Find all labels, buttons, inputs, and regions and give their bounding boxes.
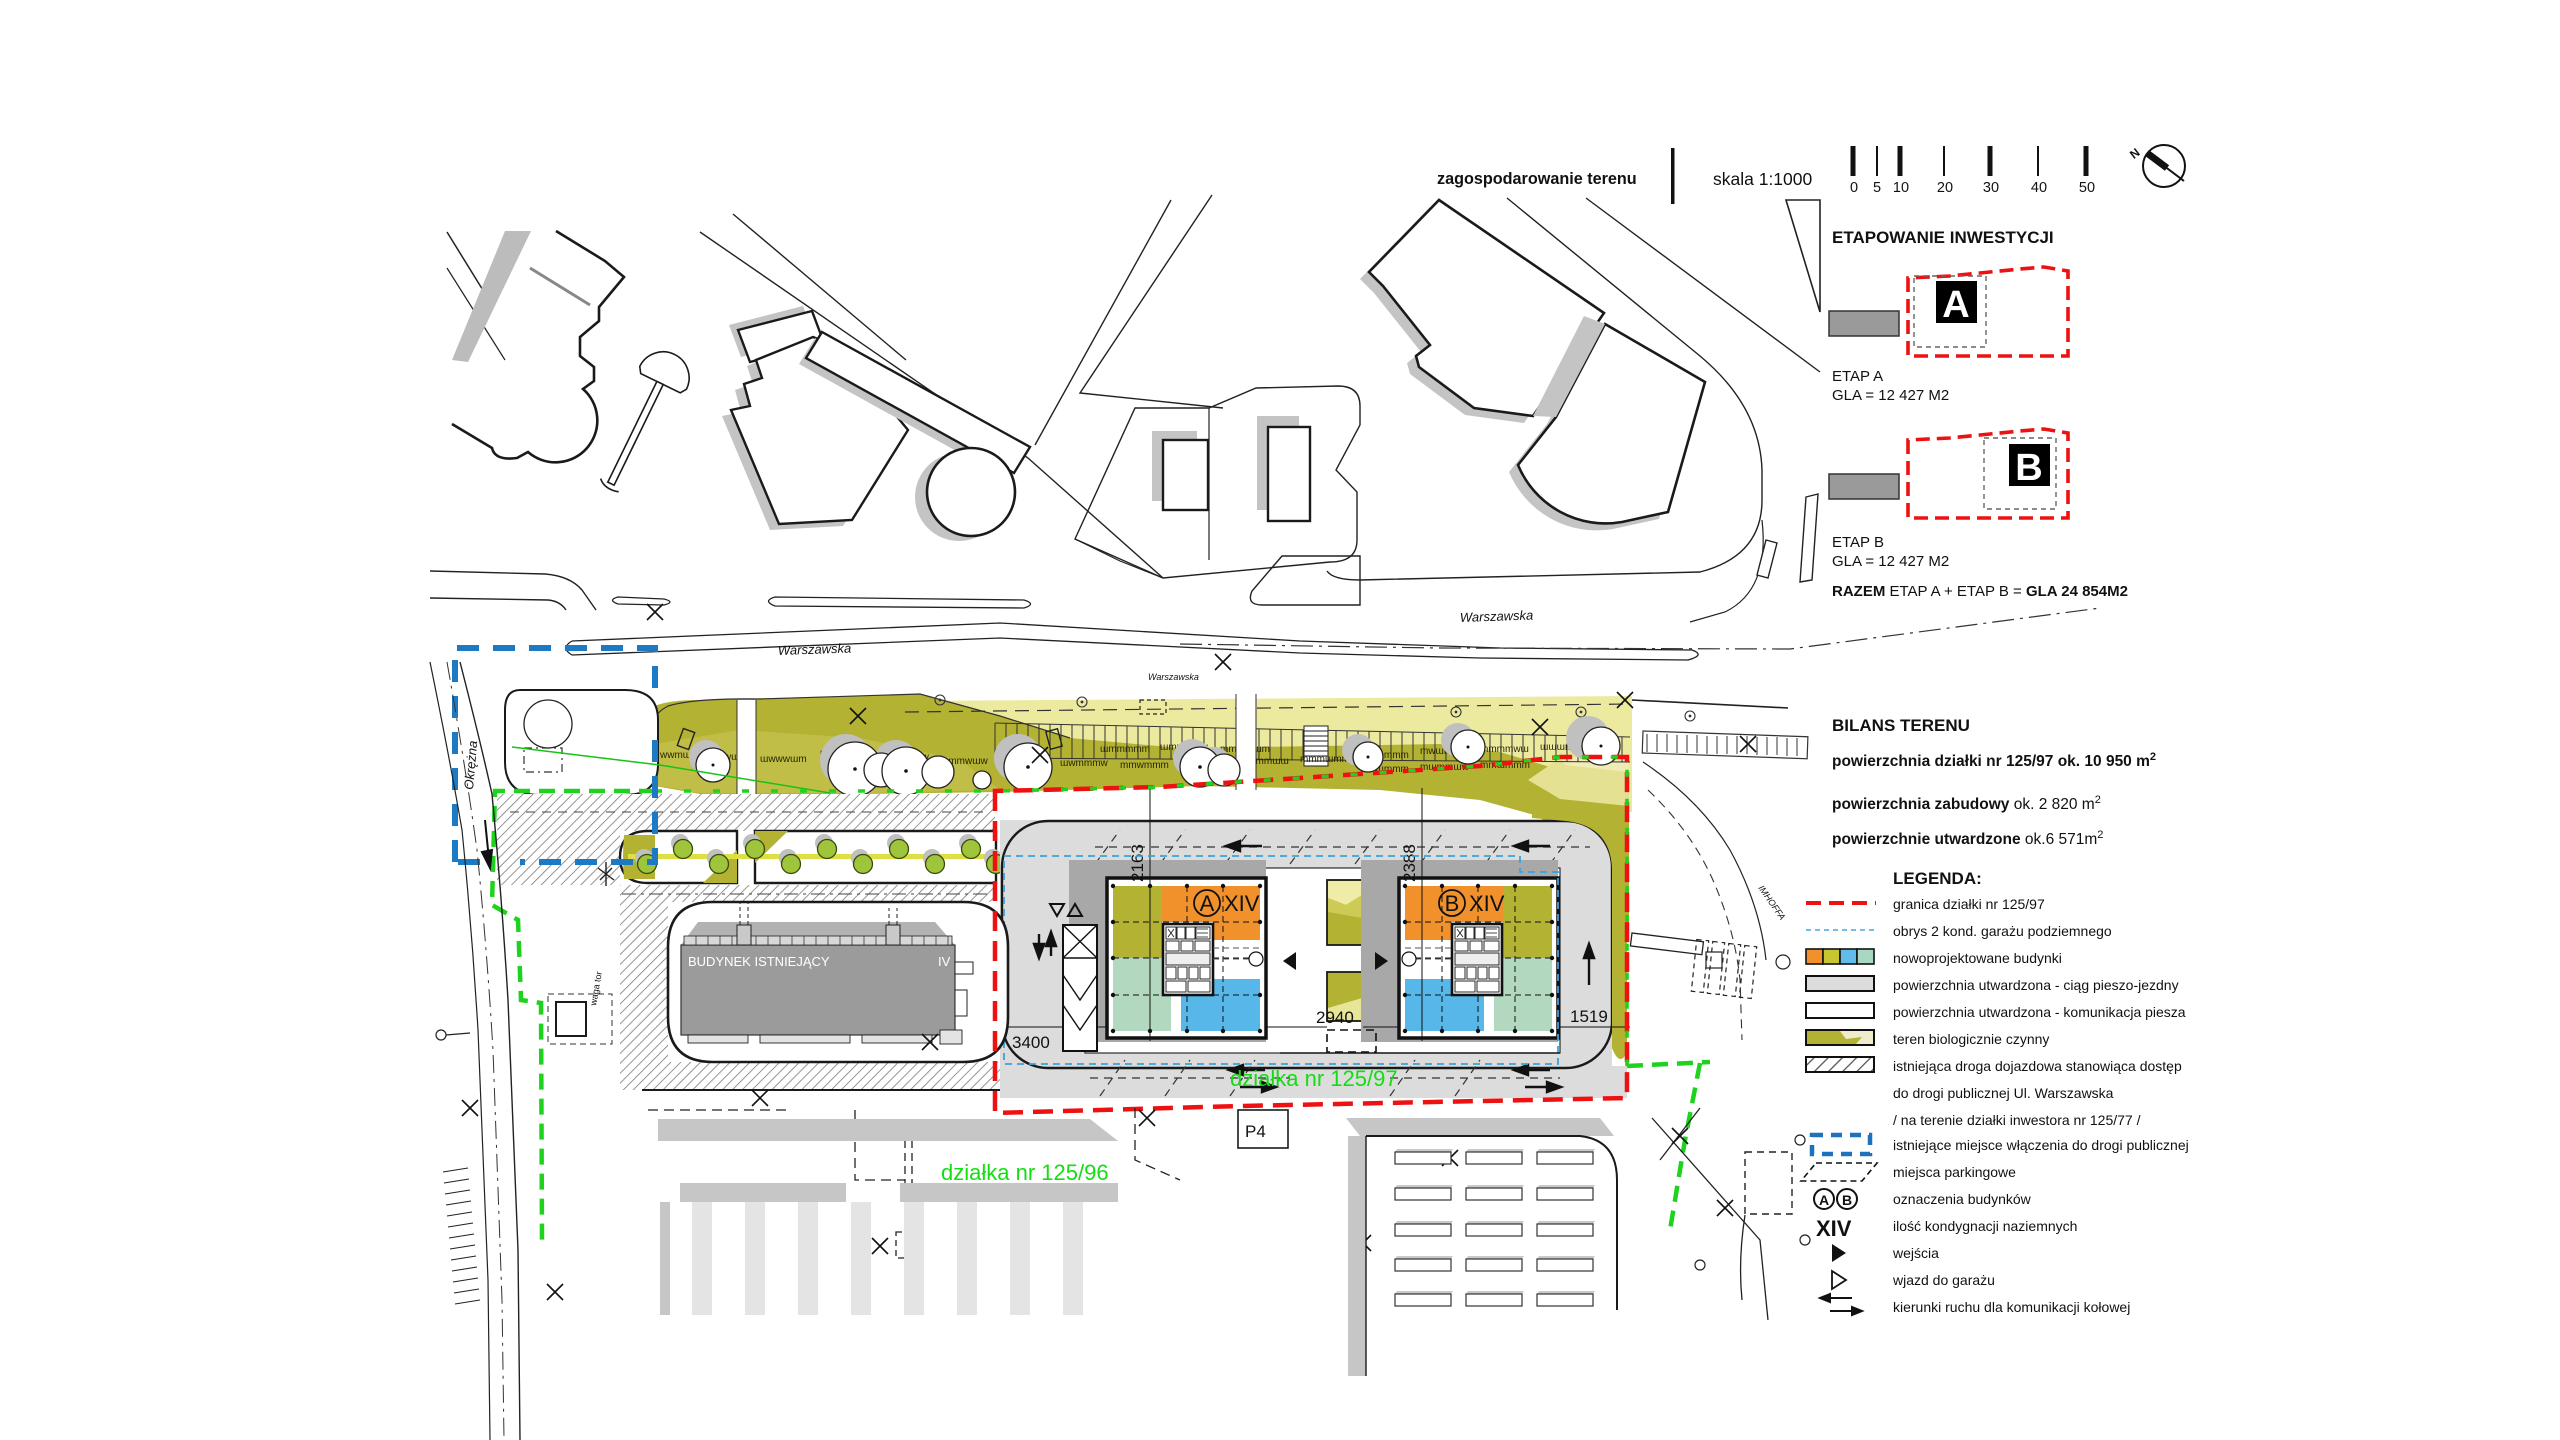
svg-text:nowoprojektowane budynki: nowoprojektowane budynki	[1893, 950, 2062, 966]
svg-text:1519: 1519	[1570, 1007, 1608, 1026]
svg-text:RAZEM ETAP A + ETAP B = GLA 24: RAZEM ETAP A + ETAP B = GLA 24 854M2	[1832, 583, 2128, 600]
svg-text:oznaczenia budynków: oznaczenia budynków	[1893, 1191, 2032, 1207]
svg-text:Warszawska: Warszawska	[778, 640, 852, 658]
svg-text:wejścia: wejścia	[1892, 1245, 1939, 1261]
svg-text:BILANS TERENU: BILANS TERENU	[1832, 716, 1970, 735]
svg-text:mmwmmm: mmwmmm	[1120, 760, 1169, 771]
svg-text:ɯwwwɯm: ɯwwwɯm	[760, 754, 807, 765]
svg-text:powierzchnia zabudowy ok. 2 82: powierzchnia zabudowy ok. 2 820 m2	[1832, 794, 2101, 813]
svg-text:teren biologicznie czynny: teren biologicznie czynny	[1893, 1031, 2049, 1047]
svg-text:20: 20	[1937, 180, 1953, 196]
svg-text:Warszawska: Warszawska	[1460, 607, 1534, 625]
svg-text:powierzchnie utwardzone ok.6: powierzchnie utwardzone ok.6 571m2	[1832, 829, 2103, 848]
svg-text:XIV: XIV	[1816, 1216, 1852, 1241]
svg-text:obrys 2 kond. garażu podziemne: obrys 2 kond. garażu podziemnego	[1893, 923, 2112, 939]
svg-text:ɯmmmmm: ɯmmmmm	[1100, 744, 1150, 755]
svg-text:ETAP A: ETAP A	[1832, 368, 1883, 385]
svg-text:LEGENDA:: LEGENDA:	[1893, 869, 1982, 888]
svg-text:powierzchnia utwardzona - ciąg: powierzchnia utwardzona - ciąg pieszo-je…	[1893, 977, 2179, 993]
svg-text:50: 50	[2079, 180, 2095, 196]
svg-text:działka nr 125/97: działka nr 125/97	[1230, 1066, 1398, 1091]
svg-text:2163: 2163	[1128, 844, 1147, 882]
svg-text:zagospodarowanie terenu: zagospodarowanie terenu	[1437, 170, 1637, 188]
svg-text:GLA = 12 427 M2: GLA = 12 427 M2	[1832, 387, 1949, 404]
svg-text:BUDYNEK ISTNIEJĄCY: BUDYNEK ISTNIEJĄCY	[688, 954, 830, 969]
svg-text:granica działki nr 125/97: granica działki nr 125/97	[1893, 896, 2045, 912]
svg-text:mmmɯmm: mmmɯmm	[1300, 754, 1350, 765]
svg-text:ɯwmmmw: ɯwmmmw	[1060, 758, 1109, 769]
svg-text:A: A	[1200, 891, 1215, 916]
svg-text:B: B	[1842, 1192, 1852, 1208]
svg-text:GLA = 12 427 M2: GLA = 12 427 M2	[1832, 553, 1949, 570]
svg-text:istniejące miejsce włączenia d: istniejące miejsce włączenia do drogi pu…	[1893, 1137, 2189, 1153]
svg-text:3400: 3400	[1012, 1033, 1050, 1052]
svg-text:40: 40	[2031, 180, 2047, 196]
svg-text:powierzchnia utwardzona - komu: powierzchnia utwardzona - komunikacja pi…	[1893, 1004, 2186, 1020]
svg-text:P4: P4	[1245, 1122, 1266, 1141]
svg-text:0: 0	[1850, 180, 1858, 196]
svg-text:kierunki ruchu dla komunikacji: kierunki ruchu dla komunikacji kołowej	[1893, 1299, 2130, 1315]
svg-text:XIV: XIV	[1469, 891, 1505, 916]
svg-text:działka nr 125/96: działka nr 125/96	[941, 1160, 1109, 1185]
svg-text:mmmmwɯ: mmmmwɯ	[1480, 744, 1529, 755]
svg-text:do drogi publicznej Ul. Warsz: do drogi publicznej Ul. Warszawska	[1893, 1085, 2114, 1101]
svg-text:powierzchnia działki nr 125/97: powierzchnia działki nr 125/97 ok. 10 95…	[1832, 751, 2156, 770]
svg-text:XIV: XIV	[1224, 891, 1260, 916]
svg-text:/ na terenie działki inwestora: / na terenie działki inwestora nr 125/77…	[1893, 1112, 2141, 1128]
svg-text:miejsca parkingowe: miejsca parkingowe	[1893, 1164, 2016, 1180]
svg-text:B: B	[2015, 447, 2042, 489]
svg-text:istniejąca droga dojazdowa sta: istniejąca droga dojazdowa stanowiąca do…	[1893, 1058, 2182, 1074]
svg-text:ilość kondygnacji naziemnych: ilość kondygnacji naziemnych	[1893, 1218, 2077, 1234]
svg-text:skala 1:1000: skala 1:1000	[1713, 169, 1813, 189]
svg-text:A: A	[1819, 1192, 1829, 1208]
svg-text:Warszawska: Warszawska	[1148, 672, 1199, 682]
svg-text:2388: 2388	[1400, 844, 1419, 882]
svg-text:wjazd do garażu: wjazd do garażu	[1892, 1272, 1995, 1288]
svg-text:2940: 2940	[1316, 1008, 1354, 1027]
svg-text:5: 5	[1873, 180, 1881, 196]
svg-text:B: B	[1445, 891, 1460, 916]
svg-text:IV: IV	[938, 954, 951, 969]
svg-text:30: 30	[1983, 180, 1999, 196]
svg-text:ETAP B: ETAP B	[1832, 534, 1884, 551]
svg-text:A: A	[1942, 284, 1969, 326]
svg-text:10: 10	[1893, 180, 1909, 196]
svg-text:ETAPOWANIE INWESTYCJI: ETAPOWANIE INWESTYCJI	[1832, 228, 2054, 247]
